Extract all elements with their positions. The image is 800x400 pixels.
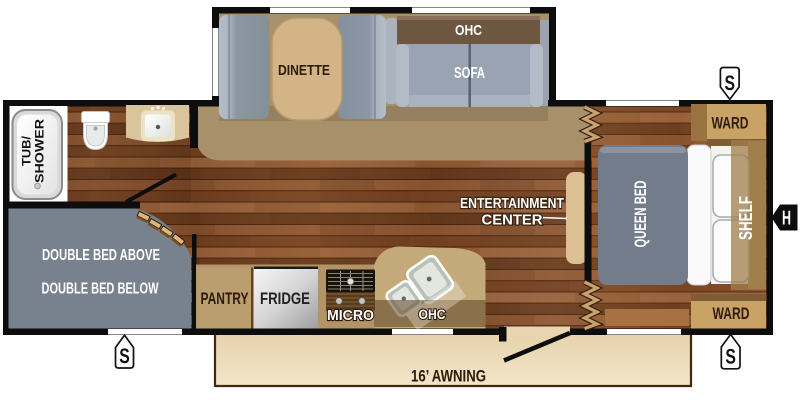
- svg-text:SHOWER: SHOWER: [35, 118, 47, 183]
- svg-text:DINETTE: DINETTE: [278, 62, 330, 79]
- svg-text:FRIDGE: FRIDGE: [260, 290, 310, 308]
- svg-text:QUEEN BED: QUEEN BED: [631, 181, 650, 248]
- svg-text:S: S: [725, 345, 736, 368]
- svg-text:S: S: [119, 345, 130, 368]
- svg-text:MICRO: MICRO: [327, 308, 374, 324]
- svg-text:CENTER: CENTER: [482, 212, 543, 229]
- svg-text:TUB/: TUB/: [22, 135, 34, 166]
- svg-text:SOFA: SOFA: [454, 65, 485, 82]
- svg-text:OHC: OHC: [455, 22, 482, 39]
- svg-text:WARD: WARD: [713, 304, 750, 323]
- svg-text:ENTERTAINMENT: ENTERTAINMENT: [460, 195, 564, 212]
- svg-text:OHC: OHC: [419, 306, 446, 322]
- svg-text:DOUBLE BED ABOVE: DOUBLE BED ABOVE: [42, 247, 160, 264]
- svg-text:WARD: WARD: [712, 114, 749, 133]
- svg-text:16’ AWNING: 16’ AWNING: [411, 368, 486, 386]
- svg-text:SHELF: SHELF: [736, 196, 756, 240]
- svg-text:H: H: [782, 207, 791, 229]
- svg-text:S: S: [725, 72, 736, 95]
- svg-text:DOUBLE BED BELOW: DOUBLE BED BELOW: [42, 281, 159, 298]
- svg-text:PANTRY: PANTRY: [201, 290, 249, 308]
